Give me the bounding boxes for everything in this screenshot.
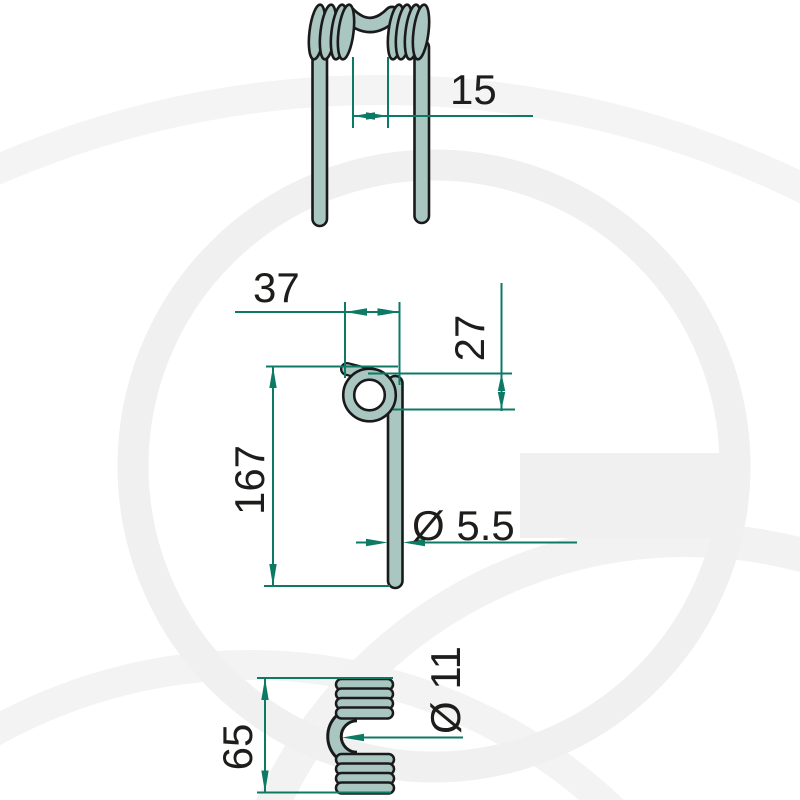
- front-right-leg: [415, 40, 430, 223]
- product-drawing-canvas: 15 37 27 167 Ø 5.5: [0, 0, 800, 800]
- front-right-coil-bundle: [385, 4, 432, 60]
- arrowhead-down: [498, 392, 505, 410]
- dim-label-coil-diameter: Ø 11: [422, 646, 469, 734]
- arrowhead-right: [378, 308, 400, 316]
- dim-label-coil-offset: 27: [446, 315, 493, 362]
- top-coil-stack-upper: [336, 679, 393, 719]
- arrowhead-right: [366, 112, 388, 120]
- top-coil-stack-lower: [336, 754, 394, 794]
- watermark-g-crossbar: [520, 453, 735, 538]
- spring-tine-technical-drawing: 15 37 27 167 Ø 5.5: [0, 0, 800, 800]
- dim-label-coil-stack-height: 65: [214, 724, 261, 771]
- coil-bar: [336, 708, 393, 719]
- dim-label-coil-width: 37: [253, 264, 300, 311]
- dim-label-wire-diameter: Ø 5.5: [412, 502, 515, 549]
- top-view: [335, 679, 395, 794]
- arrowhead-down: [269, 564, 276, 586]
- side-view: [347, 369, 403, 588]
- arrowhead-right: [366, 539, 388, 546]
- dimension-167: [264, 367, 398, 587]
- arrowhead-up: [261, 678, 268, 700]
- front-left-leg: [313, 40, 328, 226]
- arrowhead-left: [345, 308, 367, 316]
- dim-label-coil-gap: 15: [450, 66, 497, 113]
- front-left-coil-bundle: [306, 4, 357, 60]
- arrowhead-up: [498, 374, 505, 392]
- dim-label-leg-length: 167: [226, 445, 273, 515]
- arrowhead-up: [269, 367, 276, 389]
